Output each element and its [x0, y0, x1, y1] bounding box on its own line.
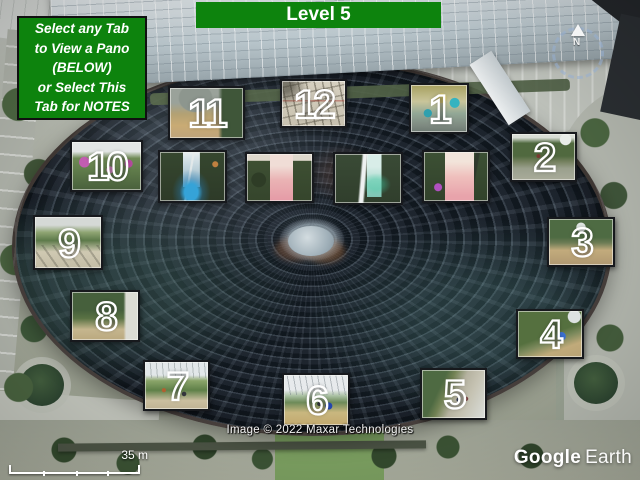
pano-tab-8[interactable]: 8	[70, 290, 140, 342]
pano-tab-7[interactable]: 7	[143, 360, 210, 411]
tab-number: 1	[429, 90, 448, 130]
level-title: Level 5	[286, 4, 350, 26]
notes-line: Tab for NOTES	[19, 97, 145, 117]
compass-north-label: N	[573, 37, 580, 48]
notes-line: Select any Tab	[19, 19, 145, 39]
notes-line: (BELOW)	[19, 58, 145, 78]
tab-number: 3	[571, 223, 590, 263]
tab-number: 9	[58, 224, 77, 264]
north-arrow-icon	[571, 24, 585, 36]
notes-tab[interactable]: Select any Tab to View a Pano (BELOW) or…	[17, 16, 147, 120]
imagery-attribution: Image © 2022 Maxar Technologies	[0, 424, 640, 436]
earth-viewport[interactable]: N 11 12 1 10 2 9 3 8 4 7 6 5 Level 5 Sel…	[0, 0, 640, 480]
scale-tick	[107, 471, 109, 476]
pano-preview-vortex-3[interactable]	[333, 152, 403, 205]
tab-number: 4	[540, 315, 559, 355]
pano-preview-vortex-4[interactable]	[422, 150, 490, 203]
scale-tick	[43, 471, 45, 476]
logo-product: Earth	[585, 447, 632, 468]
pano-tab-9[interactable]: 9	[33, 215, 103, 270]
scale-tick	[76, 471, 78, 476]
dome-oculus	[288, 226, 334, 256]
tab-number: 8	[95, 297, 114, 337]
pano-tab-3[interactable]: 3	[547, 217, 615, 267]
notes-line: or Select This	[19, 78, 145, 98]
pano-tab-6[interactable]: 6	[282, 373, 350, 427]
pano-tab-12[interactable]: 12	[280, 79, 347, 128]
pano-tab-2[interactable]: 2	[510, 132, 577, 182]
notes-line: to View a Pano	[19, 39, 145, 59]
level-title-bar: Level 5	[196, 2, 441, 28]
tab-number: 10	[87, 147, 126, 187]
logo-brand: Google	[514, 447, 581, 468]
pano-tab-11[interactable]: 11	[168, 86, 245, 140]
tab-number: 5	[444, 375, 463, 415]
scale-bar-line	[9, 465, 140, 474]
pano-tab-10[interactable]: 10	[70, 140, 143, 192]
tab-number: 6	[306, 381, 325, 421]
map-scale-bar: 35 m	[9, 448, 140, 476]
tab-number: 2	[534, 138, 553, 178]
tab-number: 12	[294, 85, 333, 125]
pano-tab-1[interactable]: 1	[409, 83, 469, 134]
tab-number: 7	[167, 367, 186, 407]
tab-number: 11	[188, 94, 224, 134]
pano-preview-vortex-2[interactable]	[245, 152, 314, 203]
google-earth-logo: GoogleEarth	[514, 447, 632, 469]
pano-preview-vortex-1[interactable]	[158, 150, 227, 203]
pano-tab-5[interactable]: 5	[420, 368, 487, 420]
compass-control[interactable]: N	[552, 27, 604, 79]
scale-label: 35 m	[121, 448, 148, 462]
pano-tab-4[interactable]: 4	[516, 309, 584, 359]
